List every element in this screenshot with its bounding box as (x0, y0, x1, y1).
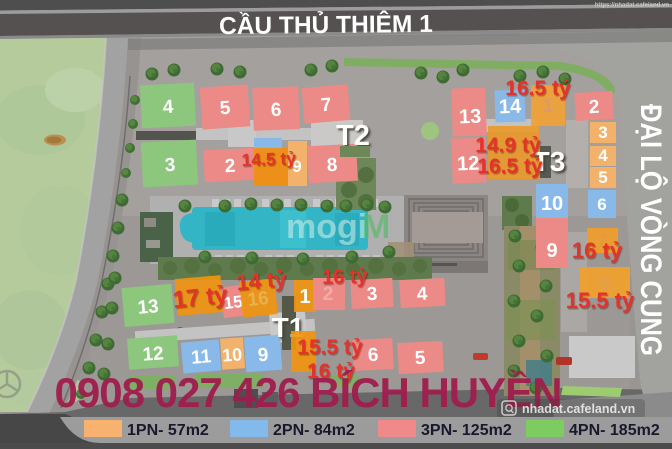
svg-text:13: 13 (137, 296, 160, 319)
svg-text:12: 12 (142, 343, 165, 365)
svg-text:6: 6 (367, 345, 379, 367)
svg-text:16.5 tỷ: 16.5 tỷ (477, 155, 543, 178)
svg-text:3PN- 125m2: 3PN- 125m2 (421, 422, 512, 439)
svg-text:9: 9 (546, 240, 557, 262)
svg-text:11: 11 (190, 346, 212, 369)
svg-text:16 tỷ: 16 tỷ (572, 238, 623, 263)
svg-text:15.5 tỷ: 15.5 tỷ (566, 288, 635, 313)
svg-text:6: 6 (270, 100, 281, 121)
svg-text:0908 027 426 BÍCH HUYỀN: 0908 027 426 BÍCH HUYỀN (55, 369, 562, 416)
svg-text:4PN- 185m2: 4PN- 185m2 (569, 422, 660, 439)
svg-text:2: 2 (588, 97, 600, 119)
svg-text:10: 10 (221, 344, 242, 365)
svg-text:1: 1 (299, 286, 310, 308)
svg-text:5: 5 (598, 168, 607, 187)
svg-text:mogi: mogi (286, 208, 367, 246)
svg-text:13: 13 (459, 106, 482, 129)
svg-text:5: 5 (219, 98, 231, 120)
svg-text:16.5 tỷ: 16.5 tỷ (505, 77, 571, 100)
svg-text:10: 10 (541, 193, 563, 215)
svg-text:17 tỷ: 17 tỷ (172, 281, 230, 314)
svg-text:16 tỷ: 16 tỷ (322, 265, 369, 289)
svg-text:ĐẠI LỘ VÒNG CUNG: ĐẠI LỘ VÒNG CUNG (634, 104, 668, 356)
svg-text:1PN- 57m2: 1PN- 57m2 (127, 422, 209, 439)
svg-text:9: 9 (257, 345, 269, 367)
svg-text:7: 7 (320, 95, 332, 117)
svg-text:6: 6 (597, 195, 606, 214)
svg-text:8: 8 (326, 155, 338, 177)
svg-text:15.5 tỷ: 15.5 tỷ (297, 336, 363, 359)
svg-text:14.5 tỷ: 14.5 tỷ (241, 148, 296, 170)
svg-text:2PN- 84m2: 2PN- 84m2 (273, 422, 355, 439)
svg-text:5: 5 (414, 348, 426, 370)
svg-text:4: 4 (416, 284, 428, 306)
svg-text:2: 2 (224, 156, 236, 178)
svg-text:3: 3 (598, 123, 607, 142)
svg-text:https://nhadat.cafeland.vn: https://nhadat.cafeland.vn (595, 3, 670, 9)
svg-text:4: 4 (162, 97, 174, 119)
svg-text:CẦU THỦ THIÊM 1: CẦU THỦ THIÊM 1 (219, 9, 433, 40)
svg-text:14.9 tỷ: 14.9 tỷ (475, 134, 541, 157)
svg-text:4: 4 (598, 146, 608, 165)
svg-text:nhadat.cafeland.vn: nhadat.cafeland.vn (522, 402, 635, 416)
svg-text:3: 3 (164, 155, 176, 177)
svg-text:14 tỷ: 14 tỷ (235, 266, 288, 295)
svg-text:3: 3 (366, 284, 378, 306)
svg-text:M: M (362, 208, 390, 246)
